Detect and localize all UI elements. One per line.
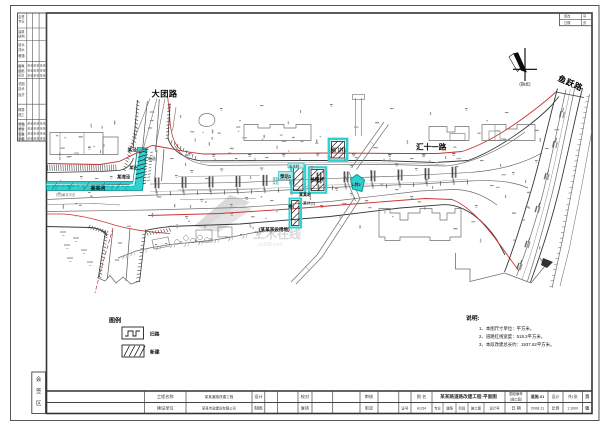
svg-text:证号: 证号 [401, 405, 409, 410]
svg-text:施工图: 施工图 [471, 405, 482, 410]
svg-text:设计: 设计 [552, 394, 560, 399]
svg-text:3、本段改建总长约：1937.62平方米。: 3、本段改建总长约：1937.62平方米。 [479, 341, 554, 348]
svg-text:道施-01: 道施-01 [531, 393, 546, 399]
svg-text:审核: 审核 [365, 393, 374, 400]
svg-text:(某某某设用地): (某某某设用地) [259, 226, 290, 233]
svg-text:某某: 某某 [33, 62, 39, 67]
svg-text:某井(1): 某井(1) [303, 201, 316, 206]
svg-text:某湾泾: 某湾泾 [117, 173, 131, 180]
svg-text:会: 会 [36, 375, 42, 383]
svg-text:(指北): (指北) [519, 81, 531, 88]
svg-text:设计: 设计 [254, 393, 262, 400]
svg-text:某某: 某某 [33, 131, 39, 136]
svg-text:某某: 某某 [40, 136, 46, 141]
svg-text:某某路道路改建工程·平面图: 某某路道路改建工程·平面图 [439, 393, 497, 400]
svg-text:修改: 修改 [564, 14, 571, 19]
svg-text:建设单位: 建设单位 [157, 404, 174, 411]
svg-text:(施工图): (施工图) [510, 397, 522, 402]
svg-text:闸门井1: 闸门井1 [331, 147, 347, 154]
svg-text:格栅井: 格栅井 [311, 176, 325, 183]
svg-text:图例: 图例 [109, 317, 121, 325]
svg-text:某某: 某某 [33, 121, 39, 126]
svg-text:某某: 某某 [40, 72, 46, 77]
svg-text:某某: 某某 [18, 131, 24, 136]
svg-text:某某河: 某某河 [90, 185, 106, 192]
svg-text:某某: 某某 [33, 72, 39, 77]
svg-text:某泾: 某泾 [129, 165, 138, 170]
svg-text:签: 签 [36, 387, 42, 395]
svg-text:出水井: 出水井 [289, 163, 300, 168]
svg-text:大团路: 大团路 [152, 89, 178, 99]
svg-text:会签: 会签 [18, 14, 25, 19]
svg-text:区: 区 [36, 400, 42, 407]
svg-text:某某: 某某 [18, 62, 24, 67]
svg-text:1:1000: 1:1000 [567, 406, 578, 410]
svg-text:图 名: 图 名 [417, 393, 427, 400]
svg-text:某某: 某某 [33, 67, 39, 72]
svg-text:施工: 施工 [18, 112, 25, 117]
svg-text:阶段: 阶段 [459, 405, 466, 410]
svg-text:页: 页 [585, 393, 589, 400]
svg-text:某某: 某某 [40, 121, 46, 126]
svg-text:某某: 某某 [40, 67, 46, 72]
svg-text:某某: 某某 [33, 126, 39, 131]
svg-text:某某: 某某 [18, 136, 24, 141]
svg-text:某某市政建设有限公司: 某某市政建设有限公司 [202, 405, 236, 410]
svg-text:1、本图尺寸单位：平方米。: 1、本图尺寸单位：平方米。 [479, 325, 534, 332]
svg-text:2008.11: 2008.11 [531, 406, 544, 410]
svg-text:某某: 某某 [18, 72, 24, 77]
svg-text:日期: 日期 [564, 20, 570, 25]
svg-text:页: 页 [583, 21, 586, 25]
svg-text:道路: 道路 [446, 405, 453, 410]
svg-text:某某道路改建工程: 某某道路改建工程 [205, 394, 234, 399]
svg-text:经济: 经济 [18, 92, 25, 97]
svg-text:某某: 某某 [40, 62, 46, 67]
svg-text:某某: 某某 [18, 126, 24, 131]
svg-text:排水: 排水 [18, 47, 25, 52]
svg-text:某某: 某某 [40, 126, 46, 131]
svg-text:旧路: 旧路 [150, 331, 160, 338]
svg-text:图纸编号: 图纸编号 [509, 391, 523, 396]
svg-text:号: 号 [583, 14, 586, 19]
svg-text:校对: 校对 [301, 393, 309, 400]
svg-text:技术: 技术 [18, 86, 25, 91]
svg-text:泵站: 泵站 [273, 180, 280, 185]
svg-text:某某: 某某 [18, 67, 24, 72]
svg-text:某某: 某某 [33, 136, 39, 141]
svg-text:专业: 专业 [434, 405, 441, 410]
svg-text:新建: 新建 [150, 349, 160, 356]
svg-text:制图: 制图 [254, 404, 262, 411]
svg-text:说明:: 说明: [466, 314, 480, 322]
svg-text:专业: 专业 [18, 19, 24, 24]
svg-text:某某站: 某某站 [299, 191, 311, 197]
svg-text:复核: 复核 [301, 404, 310, 411]
svg-text:暖通: 暖通 [18, 53, 25, 58]
svg-text:概算: 概算 [18, 107, 25, 112]
svg-text:A1234: A1234 [417, 406, 426, 410]
svg-text:汇十一路: 汇十一路 [416, 142, 447, 152]
svg-text:某某: 某某 [40, 131, 46, 136]
svg-text:井1: 井1 [288, 203, 295, 209]
svg-text:给水: 给水 [18, 42, 25, 47]
svg-text:共1张: 共1张 [568, 394, 578, 399]
svg-text:工程名称: 工程名称 [157, 393, 174, 400]
svg-text:比例: 比例 [552, 405, 560, 410]
svg-text:建筑: 建筑 [18, 29, 25, 34]
svg-text:审定: 审定 [365, 404, 373, 411]
svg-text:总图: 总图 [18, 81, 24, 86]
svg-text:设计号: 设计号 [489, 405, 500, 410]
svg-text:2、道路红线宽度：518.2平方米。: 2、道路红线宽度：518.2平方米。 [479, 333, 545, 340]
svg-text:结构: 结构 [18, 34, 24, 39]
svg-text:co188.com: co188.com [258, 242, 282, 248]
svg-text:某某: 某某 [18, 121, 24, 126]
